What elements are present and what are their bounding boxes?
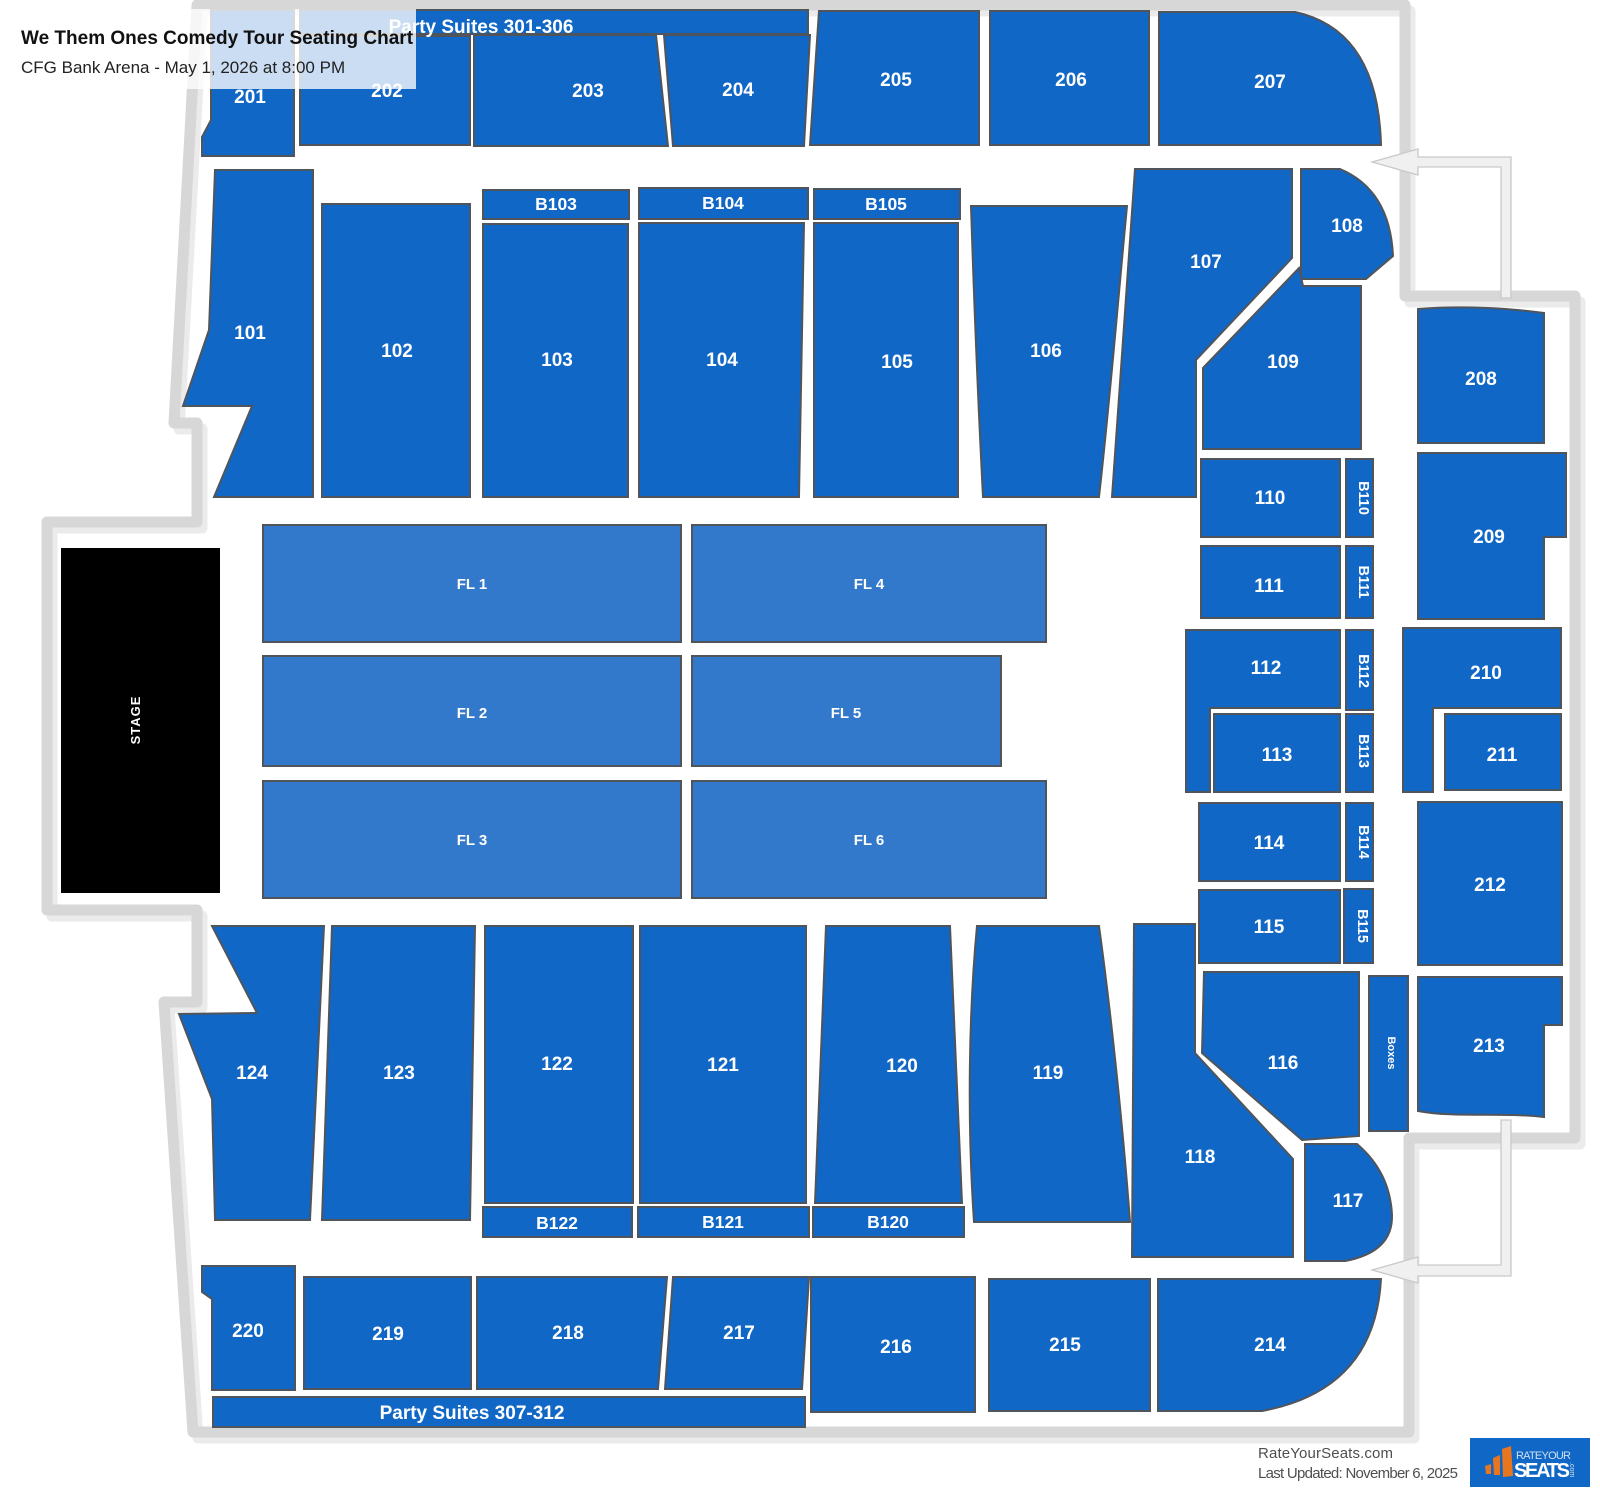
svg-text:116: 116: [1268, 1053, 1299, 1074]
svg-text:117: 117: [1333, 1191, 1364, 1212]
svg-text:101: 101: [234, 323, 266, 344]
svg-text:105: 105: [881, 352, 913, 373]
svg-text:114: 114: [1254, 833, 1285, 854]
svg-text:B105: B105: [865, 194, 907, 214]
svg-text:B115: B115: [1354, 909, 1370, 943]
svg-text:201: 201: [234, 87, 266, 108]
svg-text:CFG Bank Arena - May 1, 2026 a: CFG Bank Arena - May 1, 2026 at 8:00 PM: [21, 58, 345, 77]
svg-text:214: 214: [1254, 1335, 1286, 1356]
svg-text:110: 110: [1255, 488, 1286, 509]
svg-text:218: 218: [552, 1323, 584, 1344]
svg-text:203: 203: [572, 81, 604, 102]
svg-text:Party Suites 307-312: Party Suites 307-312: [380, 1403, 565, 1424]
svg-text:113: 113: [1262, 745, 1293, 766]
svg-text:FL 3: FL 3: [457, 832, 488, 849]
svg-text:FL 2: FL 2: [457, 705, 488, 722]
svg-text:B111: B111: [1355, 565, 1371, 598]
svg-text:215: 215: [1049, 1335, 1081, 1356]
svg-text:119: 119: [1033, 1063, 1064, 1084]
svg-text:107: 107: [1190, 252, 1222, 273]
svg-text:112: 112: [1251, 658, 1282, 679]
svg-text:SEATS: SEATS: [1514, 1460, 1570, 1482]
svg-text:FL 4: FL 4: [854, 576, 885, 593]
svg-text:B103: B103: [535, 194, 577, 214]
svg-text:207: 207: [1254, 72, 1286, 93]
svg-text:B120: B120: [867, 1212, 909, 1232]
svg-text:211: 211: [1487, 745, 1518, 766]
svg-text:B114: B114: [1355, 825, 1371, 859]
svg-text:120: 120: [886, 1056, 918, 1077]
svg-text:106: 106: [1030, 341, 1062, 362]
svg-text:B104: B104: [702, 193, 744, 213]
svg-text:206: 206: [1055, 70, 1087, 91]
svg-text:.com: .com: [1568, 1462, 1575, 1477]
svg-text:111: 111: [1254, 576, 1284, 597]
svg-text:STAGE: STAGE: [128, 696, 143, 745]
svg-text:209: 209: [1473, 527, 1505, 548]
svg-text:FL 1: FL 1: [457, 576, 488, 593]
svg-text:121: 121: [707, 1055, 739, 1076]
svg-text:219: 219: [372, 1324, 404, 1345]
svg-text:204: 204: [722, 80, 754, 101]
svg-text:216: 216: [880, 1337, 912, 1358]
svg-text:213: 213: [1473, 1036, 1505, 1057]
svg-text:205: 205: [880, 70, 912, 91]
svg-text:Party Suites 301-306: Party Suites 301-306: [389, 17, 574, 38]
svg-text:RateYourSeats.com: RateYourSeats.com: [1258, 1445, 1393, 1462]
svg-text:B122: B122: [536, 1213, 578, 1233]
svg-text:B113: B113: [1355, 734, 1371, 768]
svg-text:108: 108: [1331, 216, 1363, 237]
svg-text:109: 109: [1267, 352, 1299, 373]
svg-text:102: 102: [381, 341, 413, 362]
svg-text:B112: B112: [1355, 654, 1371, 688]
svg-text:208: 208: [1465, 369, 1497, 390]
svg-text:B121: B121: [702, 1212, 744, 1232]
svg-text:220: 220: [232, 1321, 264, 1342]
svg-text:217: 217: [723, 1323, 755, 1344]
svg-text:115: 115: [1254, 917, 1285, 938]
svg-text:Boxes: Boxes: [1385, 1036, 1397, 1069]
svg-text:212: 212: [1474, 875, 1506, 896]
svg-text:210: 210: [1470, 663, 1502, 684]
svg-text:124: 124: [236, 1063, 268, 1084]
svg-text:104: 104: [706, 350, 738, 371]
svg-text:Last Updated: November 6, 2025: Last Updated: November 6, 2025: [1258, 1465, 1458, 1482]
svg-text:B110: B110: [1355, 481, 1371, 515]
svg-text:FL 5: FL 5: [831, 705, 862, 722]
svg-text:123: 123: [383, 1063, 415, 1084]
svg-text:118: 118: [1185, 1147, 1216, 1168]
svg-text:103: 103: [541, 350, 573, 371]
svg-text:122: 122: [541, 1054, 573, 1075]
svg-text:We Them Ones Comedy Tour Seati: We Them Ones Comedy Tour Seating Chart: [21, 28, 414, 49]
svg-text:FL 6: FL 6: [854, 832, 885, 849]
